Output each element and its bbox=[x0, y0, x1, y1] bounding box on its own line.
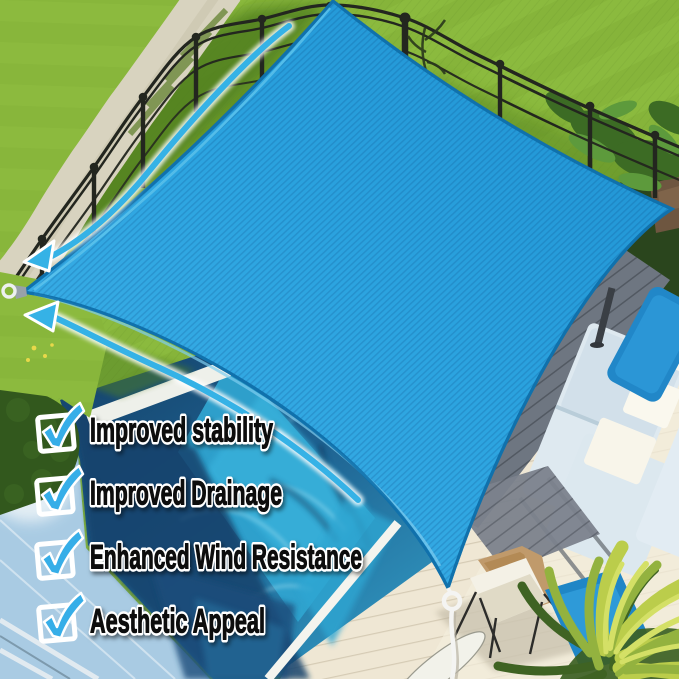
svg-text:Aesthetic Appeal: Aesthetic Appeal bbox=[90, 603, 265, 641]
svg-text:Improved stability: Improved stability bbox=[90, 412, 273, 450]
svg-text:Improved Drainage: Improved Drainage bbox=[90, 475, 282, 513]
svg-text:Enhanced Wind Resistance: Enhanced Wind Resistance bbox=[90, 539, 362, 577]
